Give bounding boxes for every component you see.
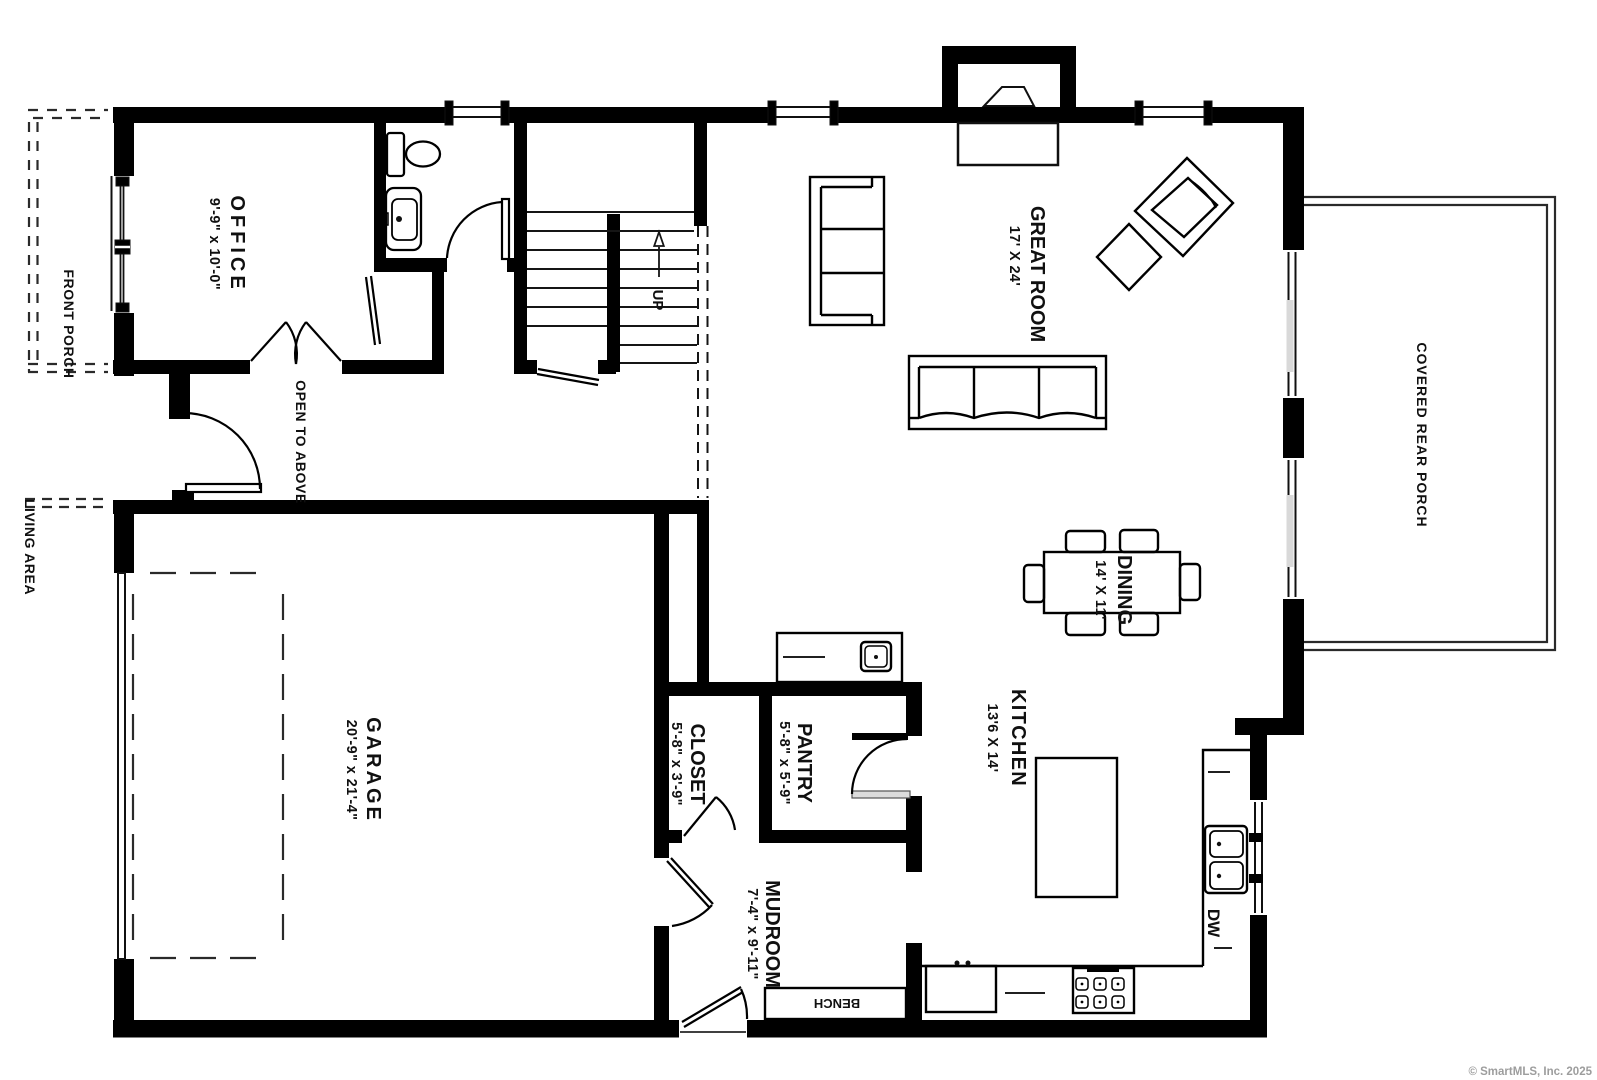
svg-text:14' X 11': 14' X 11' (1092, 560, 1108, 620)
svg-text:13'6 X 14': 13'6 X 14' (984, 704, 1000, 773)
svg-text:17' X 24': 17' X 24' (1006, 226, 1022, 286)
svg-text:7'-4" x 9'-11": 7'-4" x 9'-11" (744, 888, 760, 980)
svg-text:GARAGE: GARAGE (362, 717, 384, 823)
svg-text:20'-9" x 21'-4": 20'-9" x 21'-4" (343, 720, 359, 821)
svg-text:PANTRY: PANTRY (793, 723, 815, 804)
svg-text:DINING: DINING (1113, 555, 1135, 625)
svg-text:5'-8" x 3'-9": 5'-8" x 3'-9" (668, 722, 684, 806)
svg-text:FRONT PORCH: FRONT PORCH (61, 269, 77, 378)
svg-text:GREAT ROOM: GREAT ROOM (1026, 206, 1048, 342)
svg-text:© SmartMLS, Inc. 2025: © SmartMLS, Inc. 2025 (1468, 1066, 1592, 1078)
svg-text:OFFICE: OFFICE (226, 195, 248, 292)
svg-text:BENCH: BENCH (814, 996, 860, 1011)
svg-text:LIVING AREA: LIVING AREA (22, 499, 38, 595)
svg-text:UP: UP (649, 290, 666, 311)
svg-text:5'-8" x 5'-9": 5'-8" x 5'-9" (776, 721, 792, 805)
svg-text:COVERED REAR PORCH: COVERED REAR PORCH (1414, 342, 1430, 527)
svg-text:9'-9" x 10'-0": 9'-9" x 10'-0" (206, 198, 222, 290)
svg-text:KITCHEN: KITCHEN (1007, 689, 1029, 787)
svg-text:OPEN TO ABOVE: OPEN TO ABOVE (293, 380, 309, 504)
svg-text:DW: DW (1204, 909, 1223, 938)
svg-text:CLOSET: CLOSET (686, 723, 708, 804)
svg-text:MUDROOM: MUDROOM (761, 880, 783, 988)
